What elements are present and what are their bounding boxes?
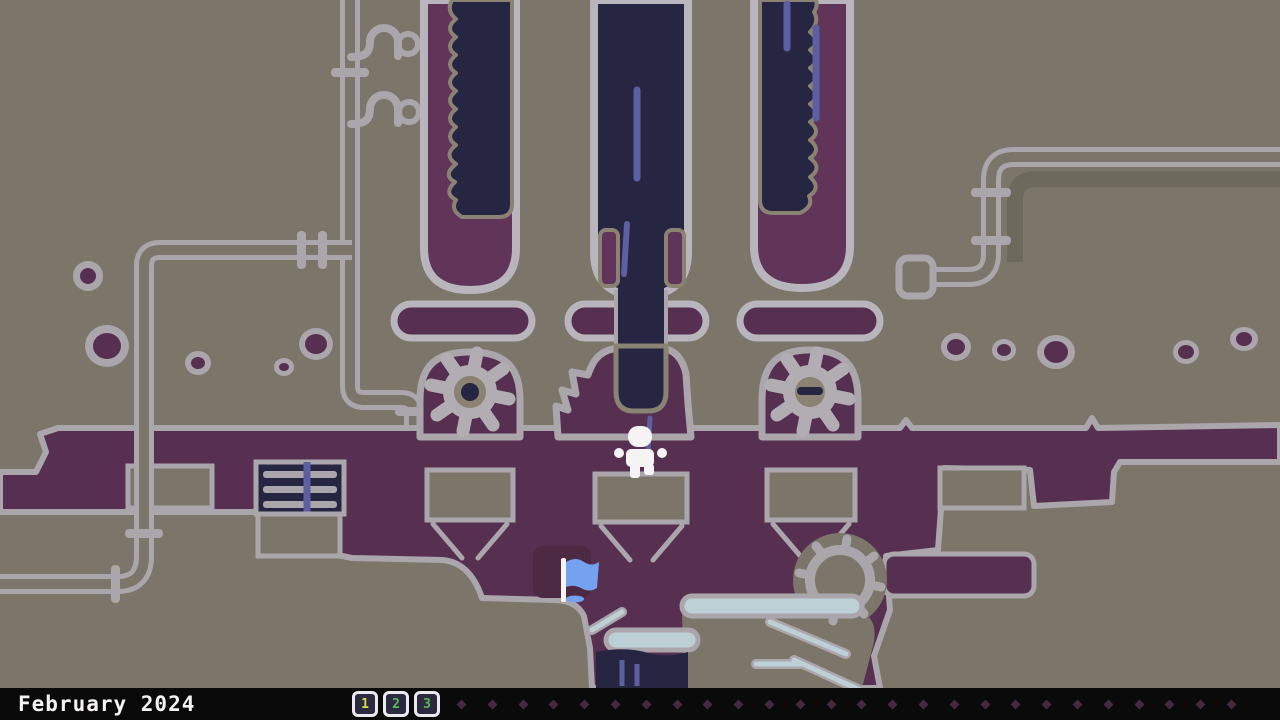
tube-gunk	[449, 0, 512, 217]
day-dot	[1226, 699, 1236, 709]
day-dot	[765, 699, 775, 709]
day-dot	[457, 699, 467, 709]
day-badge: 2	[383, 691, 409, 717]
date-label: February 2024	[18, 690, 195, 718]
pipe-flange	[125, 529, 163, 538]
test-tube-right	[754, 0, 850, 288]
hud-bar: February 2024 123	[0, 688, 1280, 720]
pipe-flange	[111, 565, 120, 603]
flag-pole	[561, 558, 566, 602]
test-tube-left	[424, 0, 516, 290]
day-dot	[1134, 699, 1144, 709]
terrain-block	[884, 554, 1034, 596]
day-dot	[1165, 699, 1175, 709]
game-viewport: February 2024 123	[0, 0, 1280, 720]
day-dot	[1196, 699, 1206, 709]
day-badge: 1	[352, 691, 378, 717]
player-head	[628, 426, 652, 447]
day-dot	[980, 699, 990, 709]
day-dot	[734, 699, 744, 709]
day-dot	[611, 699, 621, 709]
day-dot	[1103, 699, 1113, 709]
day-badges: 123	[352, 691, 440, 717]
pipe-flange	[297, 231, 306, 269]
day-dot	[641, 699, 651, 709]
day-badge: 3	[414, 691, 440, 717]
day-dot	[487, 699, 497, 709]
day-dot	[549, 699, 559, 709]
day-dot	[672, 699, 682, 709]
day-dot	[1072, 699, 1082, 709]
day-dot	[919, 699, 929, 709]
day-dots	[458, 688, 1235, 720]
pipe-end-cap	[899, 258, 933, 296]
column-end	[616, 346, 666, 411]
pipe-flange	[318, 231, 327, 269]
pipe-flange	[971, 236, 1011, 245]
day-dot	[826, 699, 836, 709]
day-dot	[518, 699, 528, 709]
day-dot	[888, 699, 898, 709]
day-dot	[703, 699, 713, 709]
player-leg	[644, 464, 654, 475]
game-scene	[0, 0, 1280, 688]
pipe-flange	[971, 188, 1011, 197]
day-dot	[857, 699, 867, 709]
player-leg	[630, 464, 640, 478]
day-dot	[580, 699, 590, 709]
day-dot	[1011, 699, 1021, 709]
test-tube-middle	[594, 0, 688, 296]
cave-pool	[596, 649, 688, 688]
day-dot	[949, 699, 959, 709]
pipe-flange	[331, 68, 369, 77]
player-hand	[657, 448, 667, 458]
day-dot	[795, 699, 805, 709]
player-hand	[614, 448, 624, 458]
day-dot	[1042, 699, 1052, 709]
liquid-streak	[624, 224, 627, 274]
